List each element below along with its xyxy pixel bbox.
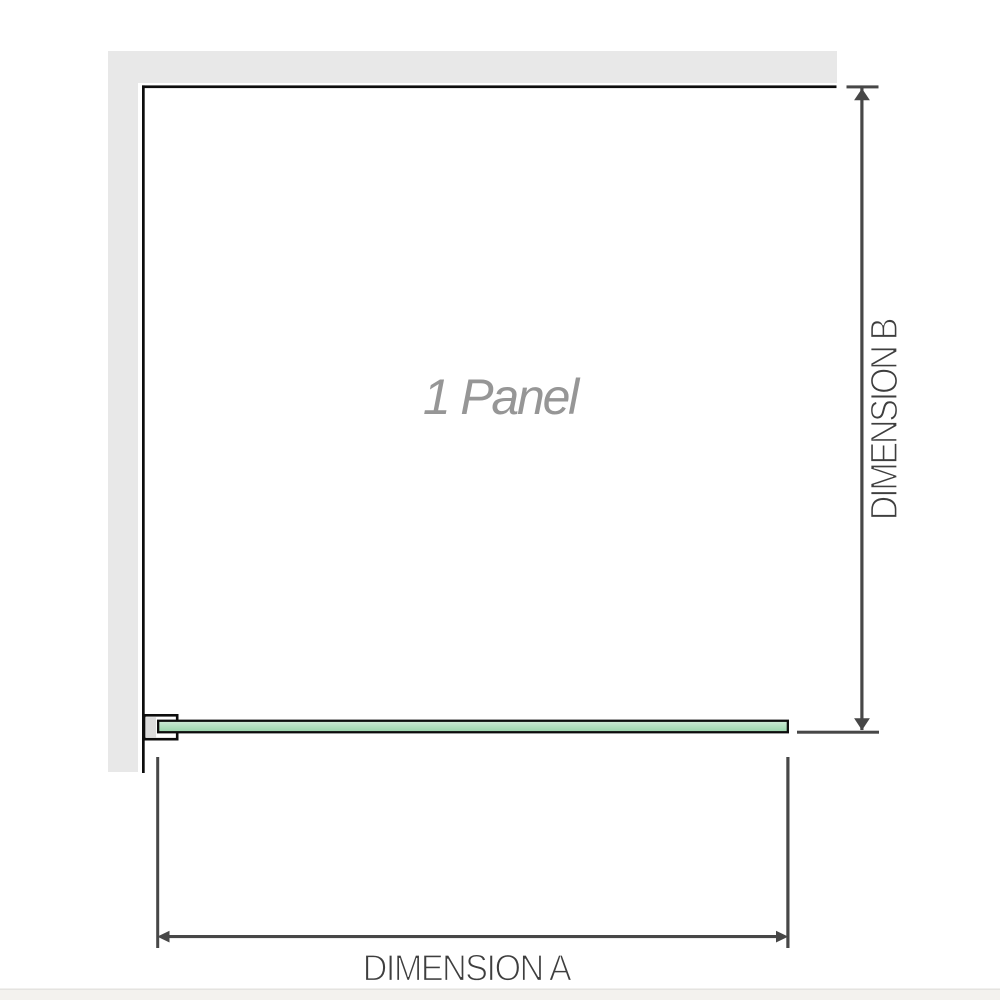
svg-text:1 Panel: 1 Panel	[423, 369, 581, 425]
svg-text:DIMENSION B: DIMENSION B	[862, 319, 905, 521]
svg-text:DIMENSION A: DIMENSION A	[363, 948, 572, 988]
